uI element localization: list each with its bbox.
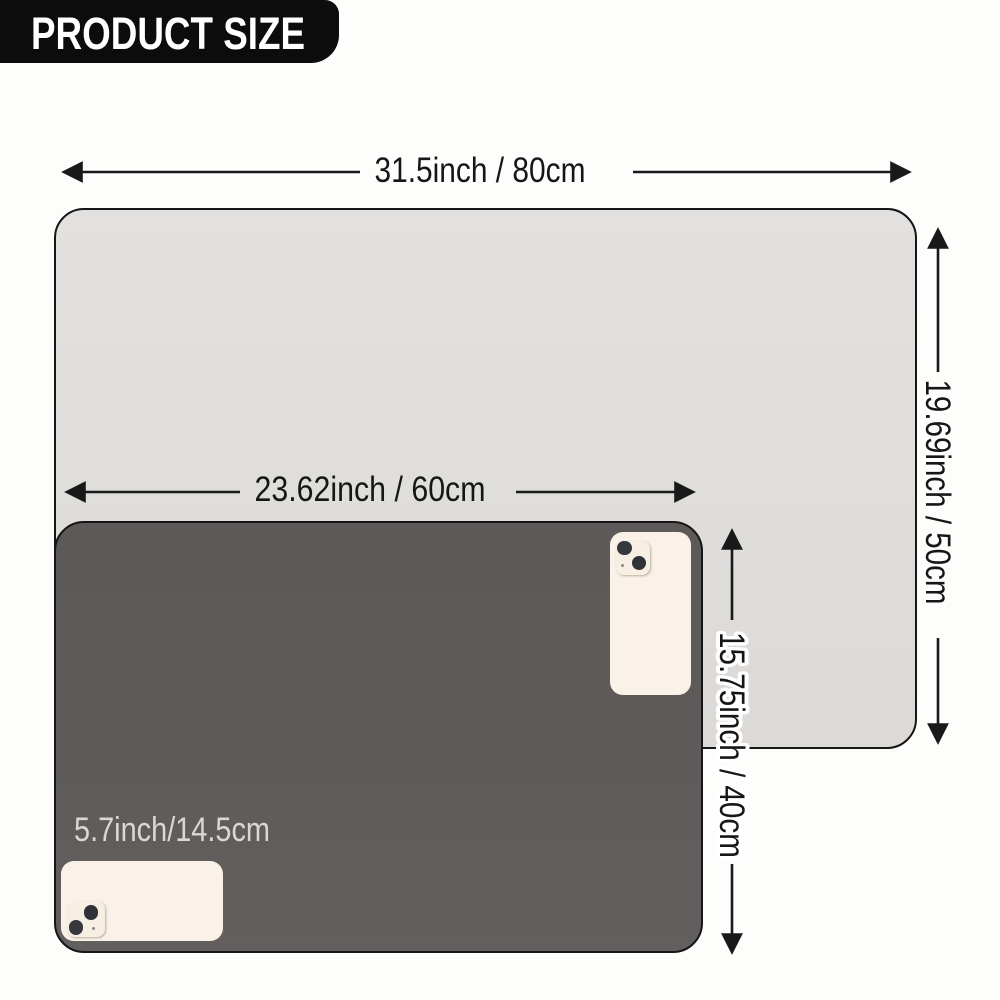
svg-text:23.62inch / 60cm: 23.62inch / 60cm xyxy=(255,470,486,509)
svg-text:19.69inch / 50cm: 19.69inch / 50cm xyxy=(918,380,957,605)
svg-text:31.5inch / 80cm: 31.5inch / 80cm xyxy=(375,151,586,190)
svg-text:15.75inch / 40cm: 15.75inch / 40cm xyxy=(712,632,751,858)
